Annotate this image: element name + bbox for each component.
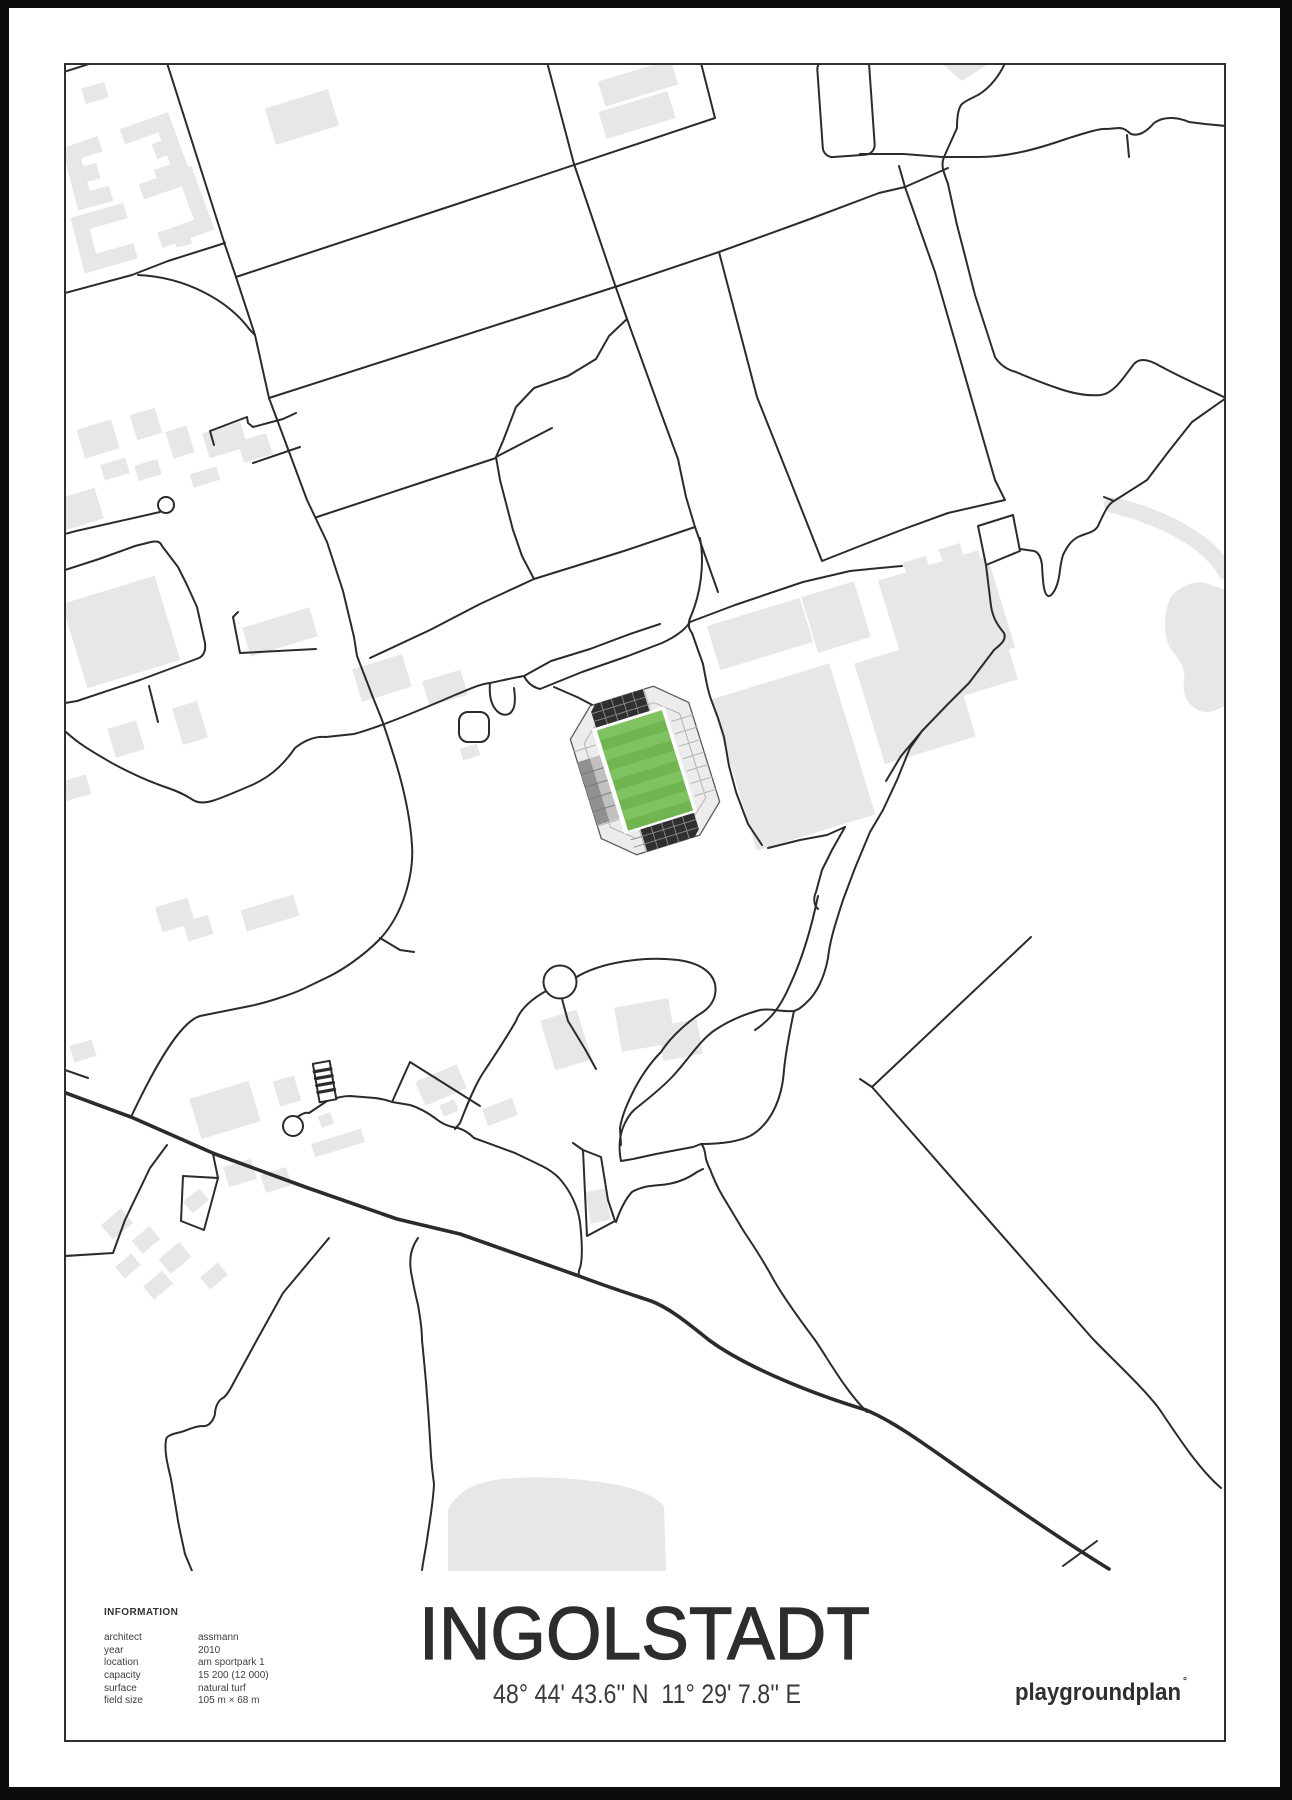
- svg-text:15 200 (12 000): 15 200 (12 000): [198, 1670, 269, 1681]
- svg-text:assmann: assmann: [198, 1632, 239, 1643]
- svg-text:INFORMATION: INFORMATION: [104, 1607, 178, 1618]
- svg-text:105 m × 68 m: 105 m × 68 m: [198, 1695, 259, 1706]
- svg-text:location: location: [104, 1657, 138, 1668]
- svg-text:architect: architect: [104, 1632, 142, 1643]
- svg-text:surface: surface: [104, 1683, 137, 1694]
- svg-text:field size: field size: [104, 1695, 143, 1706]
- svg-text:natural turf: natural turf: [198, 1683, 246, 1694]
- svg-text:°: °: [1183, 1676, 1187, 1687]
- svg-text:capacity: capacity: [104, 1670, 141, 1681]
- svg-text:2010: 2010: [198, 1645, 221, 1656]
- svg-text:48° 44' 43.6'' N 11° 29' 7.8': 48° 44' 43.6'' N 11° 29' 7.8'' E: [493, 1679, 801, 1709]
- svg-text:INGOLSTADT: INGOLSTADT: [419, 1592, 870, 1675]
- svg-text:am sportpark 1: am sportpark 1: [198, 1657, 265, 1668]
- svg-text:year: year: [104, 1645, 124, 1656]
- svg-text:playgroundplan: playgroundplan: [1015, 1679, 1181, 1706]
